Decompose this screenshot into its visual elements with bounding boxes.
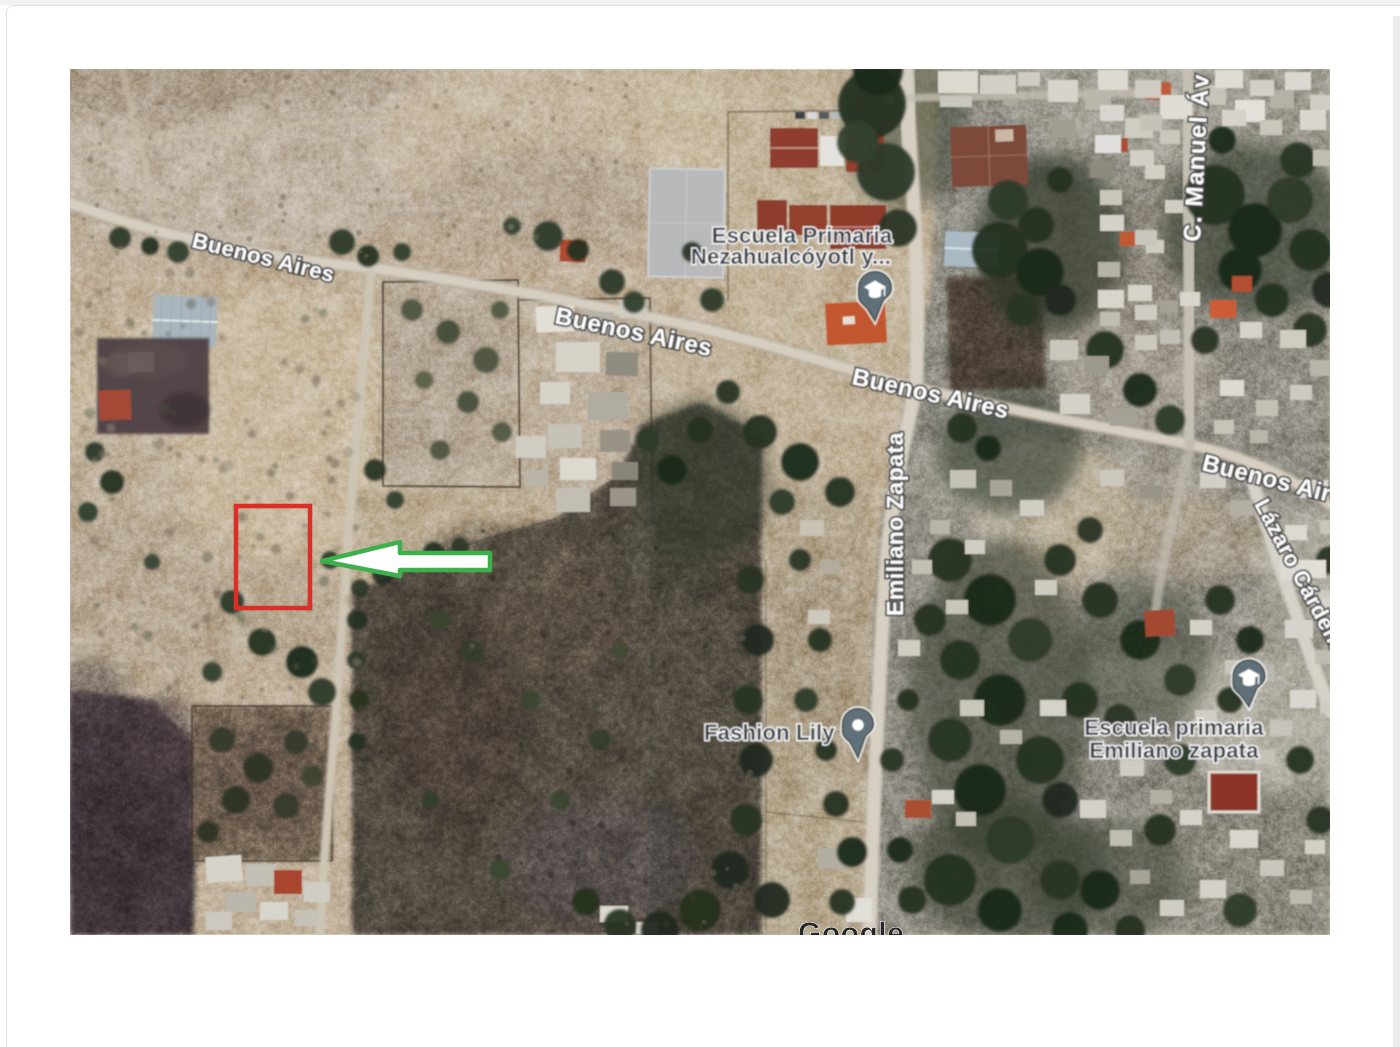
svg-text:Nezahualcóyotl y...: Nezahualcóyotl y... — [691, 244, 891, 269]
svg-text:Escuela primaria: Escuela primaria — [1084, 715, 1264, 740]
svg-text:Emiliano Zapata: Emiliano Zapata — [882, 432, 908, 616]
svg-text:Google: Google — [798, 917, 904, 935]
svg-text:Emiliano zapata: Emiliano zapata — [1089, 738, 1259, 763]
svg-text:Fashion Lily: Fashion Lily — [704, 720, 835, 745]
